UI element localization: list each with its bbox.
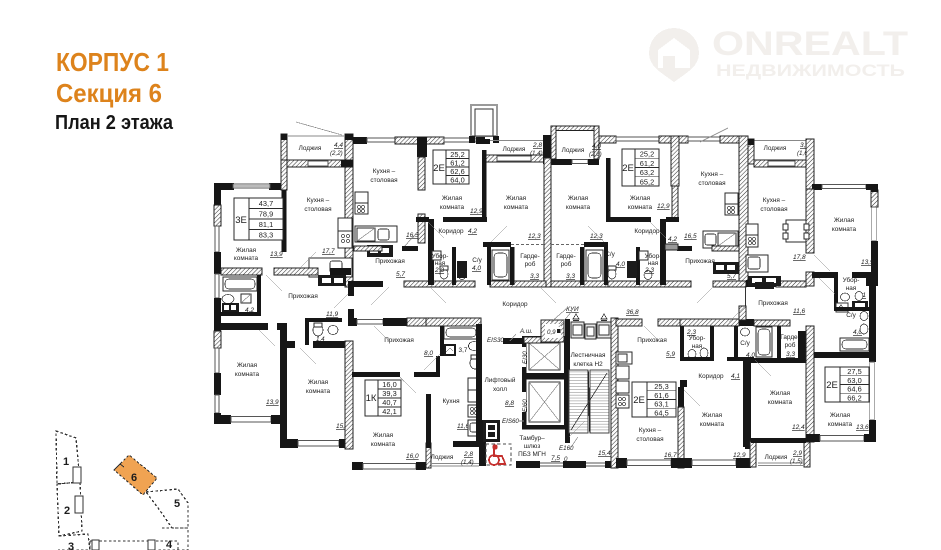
svg-text:16,7: 16,7: [664, 452, 677, 459]
svg-text:Прихожая: Прихожая: [637, 337, 667, 344]
svg-text:роб: роб: [785, 341, 796, 349]
svg-text:Прихожая: Прихожая: [685, 258, 715, 265]
svg-text:25,2: 25,2: [640, 150, 654, 159]
svg-text:клетка Н2: клетка Н2: [573, 361, 603, 368]
svg-text:15,4: 15,4: [598, 450, 611, 457]
svg-text:ЕІ60: ЕІ60: [522, 399, 529, 412]
svg-text:4,0: 4,0: [616, 261, 625, 268]
svg-text:НЕДВИЖИМОСТЬ: НЕДВИЖИМОСТЬ: [716, 61, 905, 80]
svg-text:1: 1: [63, 456, 69, 468]
svg-text:4,0: 4,0: [592, 143, 601, 150]
svg-text:комната: комната: [440, 204, 465, 211]
svg-text:(1,4): (1,4): [461, 459, 474, 466]
svg-text:6: 6: [131, 472, 137, 484]
svg-text:8,0: 8,0: [424, 350, 433, 357]
svg-text:Убор-: Убор-: [432, 252, 449, 260]
svg-text:Убор-: Убор-: [645, 252, 662, 260]
svg-text:комната: комната: [234, 255, 259, 262]
svg-text:2,3: 2,3: [686, 329, 696, 336]
svg-text:комната: комната: [828, 421, 853, 428]
svg-text:4,0: 4,0: [472, 265, 481, 272]
svg-text:столовая: столовая: [370, 177, 398, 184]
svg-text:Лоджия: Лоджия: [503, 146, 526, 153]
svg-text:ная: ная: [846, 285, 857, 292]
svg-text:Жилая: Жилая: [702, 412, 723, 419]
svg-text:27,5: 27,5: [847, 367, 861, 376]
svg-text:3,3: 3,3: [566, 273, 575, 280]
svg-text:комната: комната: [235, 371, 260, 378]
svg-text:столовая: столовая: [304, 206, 332, 213]
svg-text:12,4: 12,4: [792, 424, 805, 431]
svg-text:63,1: 63,1: [654, 400, 668, 409]
svg-text:КУИ: КУИ: [566, 306, 579, 313]
svg-text:ная: ная: [692, 343, 703, 350]
svg-text:4,2: 4,2: [468, 228, 477, 235]
svg-text:Жилая: Жилая: [630, 195, 651, 202]
svg-text:ЕІ30: ЕІ30: [522, 351, 529, 364]
svg-text:3,3: 3,3: [530, 273, 539, 280]
svg-text:16,0: 16,0: [406, 453, 419, 460]
svg-text:Кухня: Кухня: [442, 398, 460, 405]
svg-text:(1,4): (1,4): [530, 150, 543, 157]
svg-text:комната: комната: [768, 399, 793, 406]
svg-text:16,5: 16,5: [684, 233, 697, 240]
svg-text:11,6: 11,6: [793, 308, 806, 315]
svg-text:Жилая: Жилая: [442, 195, 463, 202]
svg-text:Секция 6: Секция 6: [56, 78, 162, 108]
svg-text:13,9: 13,9: [270, 251, 283, 258]
svg-text:4,1: 4,1: [731, 373, 740, 380]
svg-text:39,3: 39,3: [382, 389, 396, 398]
svg-text:Гарде-: Гарде-: [780, 334, 799, 341]
svg-text:3,3: 3,3: [786, 351, 795, 358]
svg-text:2Е: 2Е: [633, 395, 645, 406]
svg-text:65,2: 65,2: [640, 177, 654, 186]
svg-text:столовая: столовая: [636, 436, 664, 443]
svg-text:EIS30: EIS30: [487, 337, 504, 344]
svg-text:43,7: 43,7: [259, 199, 273, 208]
svg-text:64,0: 64,0: [450, 176, 464, 185]
svg-text:Лестничная: Лестничная: [571, 352, 606, 359]
svg-text:роб: роб: [525, 260, 536, 268]
svg-text:12,9: 12,9: [733, 452, 746, 459]
svg-text:13,9: 13,9: [861, 259, 874, 266]
svg-text:64,5: 64,5: [654, 408, 668, 417]
svg-text:комната: комната: [700, 421, 725, 428]
svg-text:холл: холл: [493, 386, 507, 393]
svg-text:3,7: 3,7: [459, 347, 468, 354]
svg-text:66,2: 66,2: [847, 393, 861, 402]
svg-text:Коридор: Коридор: [634, 228, 660, 235]
svg-text:7,5: 7,5: [551, 455, 560, 462]
svg-text:Кухня –: Кухня –: [763, 197, 786, 204]
svg-text:Жилая: Жилая: [308, 379, 329, 386]
svg-text:4,2: 4,2: [668, 236, 677, 243]
svg-text:(2,2): (2,2): [330, 150, 343, 157]
svg-text:12,9: 12,9: [657, 203, 670, 210]
svg-text:Гарде-: Гарде-: [520, 253, 539, 260]
svg-text:4: 4: [166, 539, 173, 550]
svg-text:0,9: 0,9: [547, 329, 556, 336]
svg-text:комната: комната: [566, 204, 591, 211]
svg-text:Жилая: Жилая: [770, 390, 791, 397]
svg-text:61,2: 61,2: [640, 159, 654, 168]
svg-text:ная: ная: [435, 260, 446, 267]
svg-text:2,8: 2,8: [463, 451, 473, 458]
svg-text:13,9: 13,9: [266, 399, 279, 406]
svg-text:5,7: 5,7: [396, 271, 405, 278]
svg-text:Прихожая: Прихожая: [375, 258, 405, 265]
svg-text:11,9: 11,9: [326, 311, 339, 318]
svg-text:83,3: 83,3: [259, 231, 273, 240]
svg-text:81,1: 81,1: [259, 220, 273, 229]
svg-text:2,3: 2,3: [644, 267, 654, 274]
svg-text:Жилая: Жилая: [834, 217, 855, 224]
svg-text:4,4: 4,4: [334, 142, 343, 149]
svg-text:ПБЗ МГН: ПБЗ МГН: [518, 451, 546, 458]
svg-text:5: 5: [174, 498, 180, 510]
svg-text:Лоджия: Лоджия: [299, 145, 322, 152]
svg-text:столовая: столовая: [760, 206, 788, 213]
svg-text:С/у: С/у: [605, 251, 615, 258]
svg-text:Лифтовый: Лифтовый: [485, 376, 516, 384]
svg-text:А.ш.: А.ш.: [519, 328, 533, 335]
svg-text:3: 3: [68, 541, 74, 550]
svg-text:(1,5): (1,5): [790, 458, 803, 465]
svg-text:комната: комната: [504, 204, 529, 211]
svg-text:С/у: С/у: [846, 312, 856, 319]
svg-text:Лоджия: Лоджия: [764, 145, 787, 152]
svg-text:Лоджия: Лоджия: [431, 454, 454, 461]
svg-text:Коридор: Коридор: [698, 373, 724, 380]
svg-text:64,6: 64,6: [847, 385, 861, 394]
svg-text:Кухня –: Кухня –: [373, 168, 396, 175]
svg-text:17,7: 17,7: [322, 248, 335, 255]
svg-text:2Е: 2Е: [433, 163, 445, 174]
svg-text:Кухня –: Кухня –: [701, 171, 724, 178]
svg-text:Кухня –: Кухня –: [639, 427, 662, 434]
svg-text:40,7: 40,7: [382, 398, 396, 407]
svg-text:Жилая: Жилая: [568, 195, 589, 202]
svg-text:комната: комната: [832, 226, 857, 233]
svg-text:Жилая: Жилая: [830, 412, 851, 419]
svg-text:1К: 1К: [366, 393, 377, 404]
svg-text:Жилая: Жилая: [237, 362, 258, 369]
svg-text:25,3: 25,3: [654, 382, 668, 391]
svg-text:комната: комната: [628, 204, 653, 211]
svg-text:Жилая: Жилая: [373, 432, 394, 439]
svg-text:Кухня –: Кухня –: [307, 197, 330, 204]
svg-text:Прихожая: Прихожая: [288, 293, 318, 300]
svg-text:Тамбур–: Тамбур–: [519, 434, 545, 442]
svg-text:63,2: 63,2: [640, 168, 654, 177]
svg-text:2Е: 2Е: [622, 163, 634, 174]
svg-text:шлюз: шлюз: [524, 443, 541, 450]
svg-text:Лоджия: Лоджия: [765, 454, 788, 461]
svg-text:Убор-: Убор-: [843, 276, 860, 284]
svg-text:63,0: 63,0: [847, 376, 861, 385]
svg-text:2Е: 2Е: [826, 380, 838, 391]
svg-text:Коридор: Коридор: [502, 301, 528, 308]
svg-text:2,8: 2,8: [532, 142, 542, 149]
svg-text:13,6: 13,6: [856, 424, 869, 431]
svg-text:столовая: столовая: [698, 180, 726, 187]
svg-text:С/у: С/у: [472, 257, 482, 264]
svg-text:61,6: 61,6: [654, 391, 668, 400]
svg-text:Лоджия: Лоджия: [562, 147, 585, 154]
svg-text:12,3: 12,3: [528, 233, 541, 240]
svg-text:EIS60: EIS60: [502, 418, 519, 425]
svg-text:42,1: 42,1: [382, 407, 396, 416]
svg-text:С/у: С/у: [740, 340, 750, 347]
svg-text:комната: комната: [306, 388, 331, 395]
svg-text:3Е: 3Е: [235, 215, 247, 226]
svg-text:5,7: 5,7: [727, 273, 736, 280]
svg-text:Гарде-: Гарде-: [556, 253, 575, 260]
svg-text:Жилая: Жилая: [506, 195, 527, 202]
svg-text:17,8: 17,8: [793, 254, 806, 261]
svg-text:ONREALT: ONREALT: [712, 25, 908, 63]
svg-text:Коридор: Коридор: [438, 228, 464, 235]
svg-text:Жилая: Жилая: [236, 247, 257, 254]
svg-text:роб: роб: [561, 260, 572, 268]
svg-text:12,9: 12,9: [470, 208, 483, 215]
svg-text:16,5: 16,5: [406, 232, 419, 239]
svg-text:Прихожая: Прихожая: [758, 300, 788, 307]
svg-text:36,8: 36,8: [626, 309, 639, 316]
svg-text:2: 2: [64, 505, 70, 517]
svg-text:ная: ная: [648, 260, 659, 267]
svg-text:2,3: 2,3: [434, 267, 444, 274]
svg-text:78,9: 78,9: [259, 210, 273, 219]
svg-text:комната: комната: [371, 441, 396, 448]
svg-text:КОРПУС 1: КОРПУС 1: [56, 47, 169, 77]
svg-text:План 2 этажа: План 2 этажа: [55, 111, 174, 134]
svg-text:5,9: 5,9: [666, 351, 675, 358]
svg-text:16,0: 16,0: [382, 380, 396, 389]
svg-text:8,8: 8,8: [505, 400, 514, 407]
svg-text:(2,0): (2,0): [589, 151, 602, 158]
svg-text:2,9: 2,9: [792, 450, 802, 457]
